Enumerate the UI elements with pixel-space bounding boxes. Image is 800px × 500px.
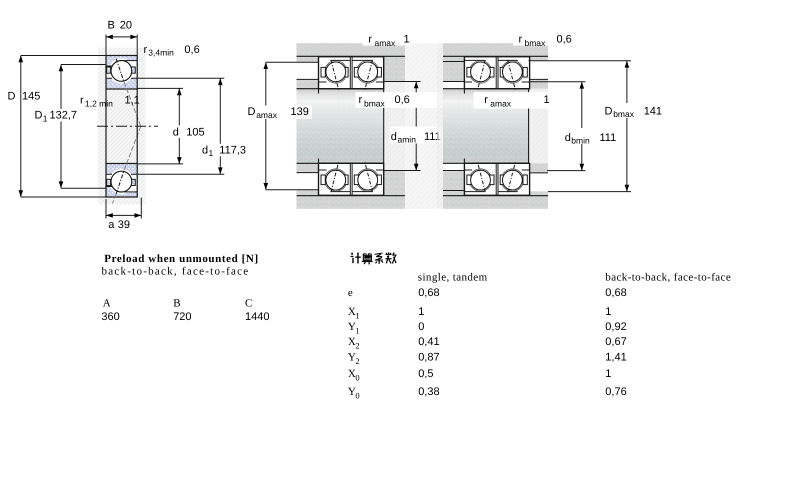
svg-text:117,3: 117,3 [219,144,246,156]
svg-text:back-to-back, face-to-face: back-to-back, face-to-face [605,271,731,283]
svg-text:3,4min: 3,4min [148,48,174,58]
svg-text:d: d [173,126,179,138]
svg-text:r: r [519,33,523,45]
svg-text:0: 0 [355,373,359,383]
svg-text:1: 1 [544,94,550,106]
svg-text:1: 1 [418,306,424,318]
svg-text:amin: amin [398,135,417,145]
svg-text:720: 720 [173,311,191,323]
svg-text:r: r [359,94,363,106]
svg-text:D: D [8,91,16,103]
svg-text:20: 20 [120,20,132,32]
svg-text:0,67: 0,67 [605,336,626,348]
svg-text:2: 2 [355,356,359,366]
svg-text:132,7: 132,7 [50,110,78,122]
svg-text:1: 1 [605,368,611,380]
svg-text:105: 105 [186,126,204,138]
svg-text:A: A [103,298,111,310]
svg-text:D: D [35,110,43,122]
svg-text:0,41: 0,41 [418,336,439,348]
svg-text:bmin: bmin [571,136,590,146]
svg-text:39: 39 [118,219,130,231]
svg-text:360: 360 [101,311,119,323]
svg-text:a: a [108,219,115,231]
svg-text:r: r [484,94,488,106]
svg-text:amax: amax [490,99,512,109]
svg-text:0,76: 0,76 [605,386,626,398]
svg-text:0: 0 [418,321,424,333]
svg-text:0: 0 [355,391,359,401]
svg-text:0,6: 0,6 [395,94,410,106]
svg-text:0,68: 0,68 [418,287,439,299]
svg-text:Preload when unmounted [N]: Preload when unmounted [N] [104,253,258,265]
svg-text:d: d [565,132,571,144]
svg-text:0,68: 0,68 [605,287,626,299]
svg-text:1: 1 [605,306,611,318]
svg-text:1,1: 1,1 [125,95,140,107]
svg-text:amax: amax [256,110,278,120]
svg-text:bmax: bmax [525,38,547,48]
svg-text:1440: 1440 [245,311,269,323]
svg-text:141: 141 [644,106,662,118]
svg-text:D: D [605,106,613,118]
svg-text:r: r [80,95,84,107]
svg-text:0,92: 0,92 [605,321,626,333]
svg-text:111: 111 [600,132,617,144]
svg-text:back-to-back, face-to-face: back-to-back, face-to-face [102,266,250,278]
svg-text:single, tandem: single, tandem [418,271,488,283]
svg-text:0,38: 0,38 [418,386,439,398]
svg-text:d: d [391,131,397,143]
svg-text:r: r [144,44,148,56]
svg-text:0,5: 0,5 [418,368,433,380]
svg-text:1: 1 [209,148,214,158]
svg-text:0,6: 0,6 [557,33,572,45]
svg-text:1,2 min: 1,2 min [85,98,113,108]
svg-text:d: d [202,144,208,156]
svg-text:D: D [248,106,256,118]
svg-text:1: 1 [404,33,410,45]
svg-text:amax: amax [375,38,397,48]
svg-text:B: B [108,20,115,32]
svg-text:bmax: bmax [364,99,386,109]
svg-text:1: 1 [355,311,359,321]
svg-text:1: 1 [43,113,48,123]
svg-text:2: 2 [355,341,359,351]
svg-text:1: 1 [355,326,359,336]
svg-text:139: 139 [291,106,309,118]
svg-text:145: 145 [22,91,40,103]
svg-text:0,87: 0,87 [418,352,439,364]
svg-text:C: C [245,298,252,310]
svg-text:e: e [348,287,353,299]
svg-text:r: r [368,33,372,45]
svg-text:B: B [173,298,180,310]
svg-text:0,6: 0,6 [184,44,199,56]
svg-text:bmax: bmax [613,109,635,119]
svg-text:1,41: 1,41 [605,352,626,364]
